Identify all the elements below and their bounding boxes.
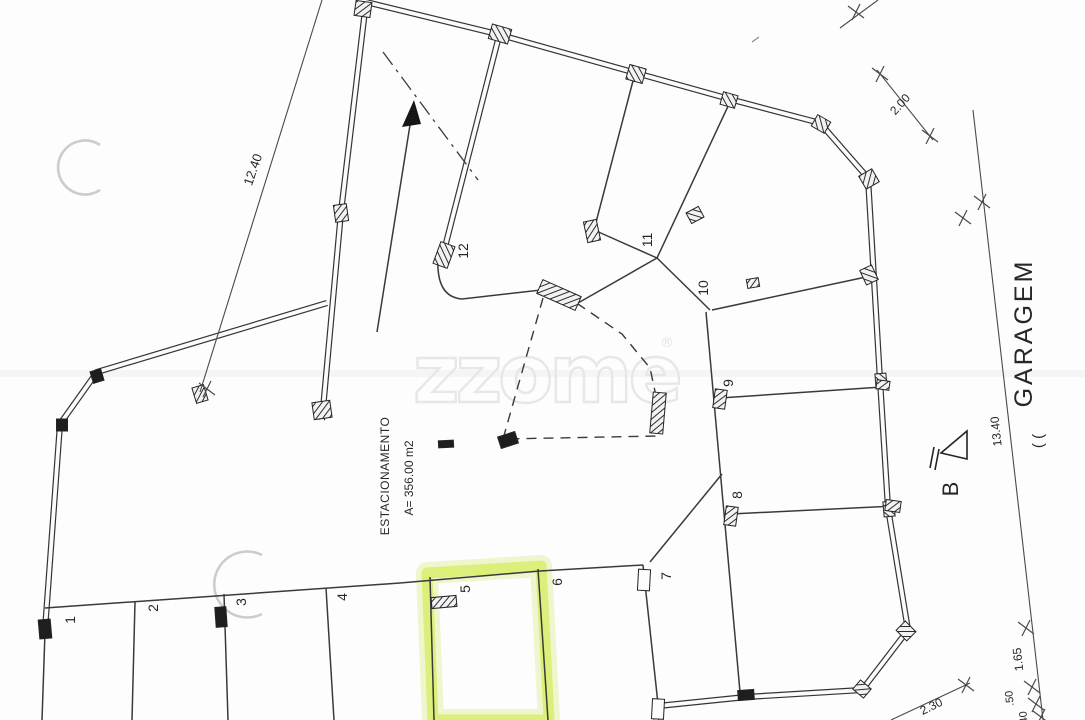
column [651,699,664,720]
column [686,206,704,223]
stray-pencil-mark [752,37,759,42]
area-label-value: A= 356.00 m2 [402,440,416,515]
column [720,92,738,109]
section-marker-label: B [938,482,963,497]
dimension-1-65: 1.65 [1010,647,1026,672]
column [637,569,650,591]
dimension-12-40: 12.40 [240,152,265,188]
dimension-13-40: 13.40 [987,415,1004,447]
space-number-10: 10 [695,280,711,296]
column [431,595,457,608]
column [876,380,890,391]
column [312,400,332,419]
space-number-9: 9 [720,379,736,387]
space-number-2: 2 [145,604,161,612]
column [38,619,52,639]
garage-plan-drawing: zzome ® [0,0,1085,720]
space-number-5: 5 [457,585,473,593]
space-number-3: 3 [233,598,249,606]
watermark-registered-icon: ® [660,335,674,351]
space-number-7: 7 [658,572,674,580]
ramp-axis-line [383,52,478,180]
space-number-12: 12 [455,243,471,259]
highlighted-space-5 [427,566,549,720]
column [583,219,600,242]
section-marker-tail [930,447,939,470]
column [57,419,68,431]
space-number-4: 4 [334,593,350,601]
dimension-2-00: 2.00 [887,91,913,118]
dimension-2-30: 2.30 [918,695,945,718]
watermark-text: zzome [413,328,679,421]
space-number-6: 6 [549,578,565,586]
column [498,432,519,449]
side-text: GARAGEM ( ( [1010,259,1047,448]
column [488,24,511,44]
column [215,607,227,628]
dimension-40-partial: 40 [1017,711,1030,720]
hole-punch-mark [58,141,100,195]
column [626,64,646,83]
column [354,0,372,17]
column [738,689,755,700]
watermark: zzome ® [413,328,679,421]
section-cut-arrow-icon [941,431,967,459]
column [433,242,455,269]
column [724,506,739,526]
space-number-1: 1 [62,616,78,624]
space-number-11: 11 [639,233,655,248]
column [713,389,728,409]
illegible-partial-text: ( ( [1030,434,1047,448]
area-label-title: ESTACIONAMENTO [378,417,392,536]
column [885,500,901,513]
column [537,280,581,311]
area-label: ESTACIONAMENTO A= 356.00 m2 [378,417,416,536]
dimension-0-50: .50 [1003,690,1017,706]
floor-plan-scan: zzome ® [0,0,1085,720]
ramp-direction-arrow [377,100,421,332]
garagem-label: GARAGEM [1010,259,1038,408]
column [333,204,348,223]
column [746,278,759,289]
column [438,440,453,448]
space-number-8: 8 [729,491,745,499]
section-marker: B [930,431,967,496]
